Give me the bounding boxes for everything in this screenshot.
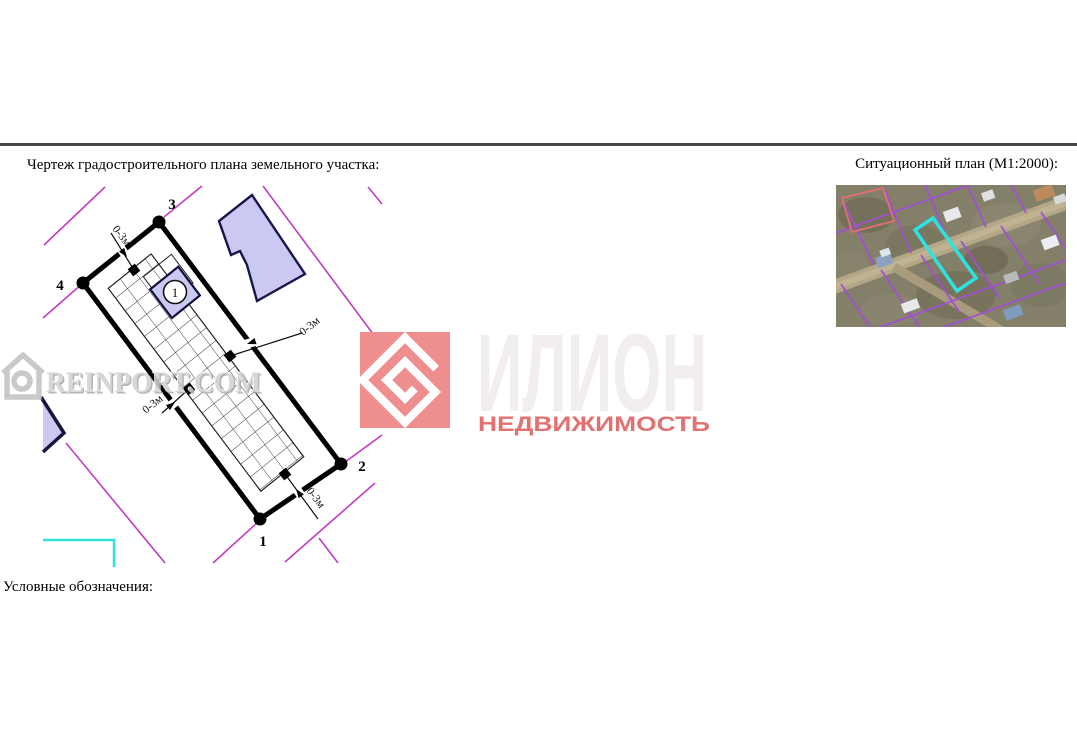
corner-label-4: 4 <box>56 278 64 294</box>
building-number-badge: 1 <box>164 281 187 304</box>
cyan-parcel-fragment <box>43 540 114 567</box>
house-icon <box>3 355 43 397</box>
building-number: 1 <box>172 285 179 300</box>
horizontal-rule <box>0 143 1077 146</box>
setback-dim-bottom: 0-3м <box>304 485 328 511</box>
legend-label: Условные обозначения: <box>3 579 153 596</box>
situational-plan-image <box>836 185 1066 327</box>
clipped-building-corner <box>41 397 64 452</box>
ilion-subtitle: НЕДВИЖИМОСТЬ <box>478 413 710 436</box>
ilion-logo-square <box>360 332 450 428</box>
ilion-watermark: ИЛИОН НЕДВИЖИМОСТЬ <box>360 312 710 436</box>
neighbor-building <box>219 195 305 301</box>
corner-label-3: 3 <box>168 197 176 213</box>
situational-plan-title: Ситуационный план (М1:2000): <box>855 156 1058 173</box>
land-plot-drawing: 0-3м 0-3м 0-3м 0-3м 3 4 2 1 1 REINPORT.C… <box>0 180 770 575</box>
setback-dim-right: 0-3м <box>297 314 323 338</box>
drawing-title: Чертеж градостроительного плана земельно… <box>27 157 379 174</box>
corner-label-2: 2 <box>358 459 366 475</box>
reinport-text: REINPORT.COM <box>46 366 261 399</box>
corner-label-1: 1 <box>259 534 267 550</box>
